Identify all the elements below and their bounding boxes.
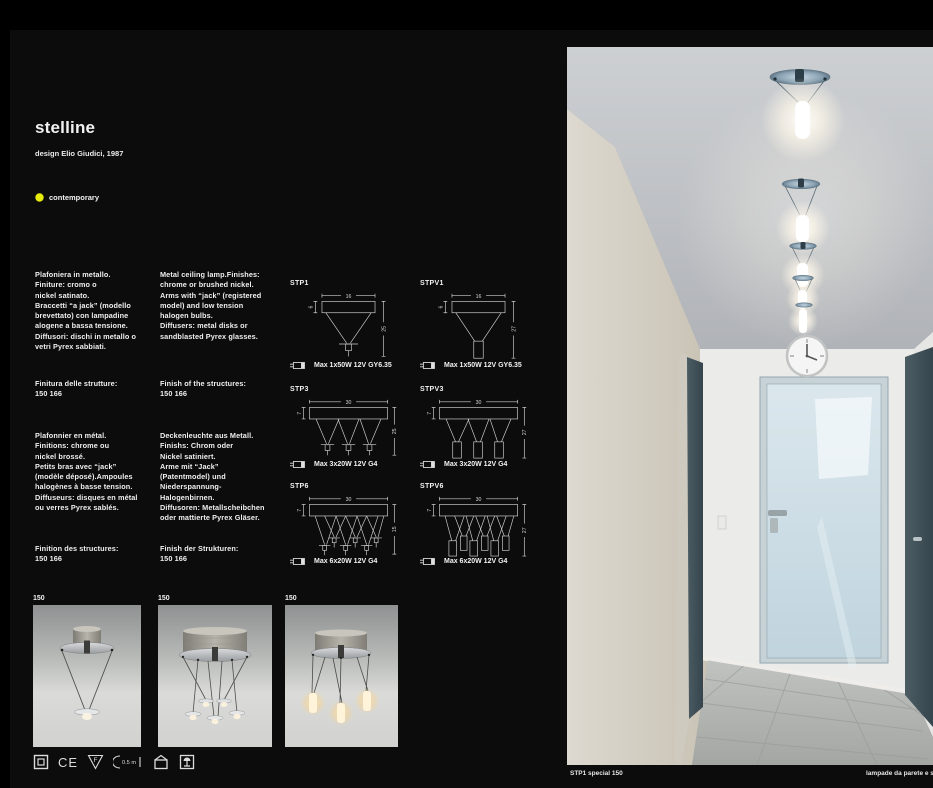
door-handle	[768, 510, 787, 516]
halogen-bulb-icon	[290, 460, 307, 469]
technical-drawing: 30 7 15	[296, 493, 401, 558]
certification-icons: CE F 0.5 m	[33, 753, 195, 771]
f-mark-icon: F	[87, 754, 104, 770]
model-code: STPV6	[420, 483, 548, 490]
model-code: STPV3	[420, 386, 548, 393]
product-photo-single: 150	[33, 595, 141, 747]
product-title: stelline	[35, 118, 95, 138]
photo-caption-right: lampade da parete e soffitto	[866, 770, 933, 777]
lamp-spec-row: Max 1x50W 12V GY6.35	[420, 361, 522, 370]
lamp-spec: Max 3x20W 12V G4	[314, 461, 377, 468]
technical-drawing: 30 7 27	[426, 493, 531, 558]
finish-italian: Finitura delle strutture: 150 166	[35, 379, 161, 400]
model-code: STPV1	[420, 280, 548, 287]
designer-credit: design Elio Giudici, 1987	[35, 149, 123, 158]
right-door-handle	[913, 537, 922, 541]
svg-text:25: 25	[392, 428, 398, 434]
wall-clock	[787, 336, 827, 376]
svg-text:30: 30	[346, 497, 352, 503]
hallway-scene	[567, 47, 933, 765]
ceiling-mount-icon	[152, 754, 170, 770]
model-code: STP1	[290, 280, 418, 287]
lamp-spec-row: Max 3x20W 12V G4	[290, 460, 377, 469]
product-photo-three-glass: 150	[285, 595, 398, 747]
category-dot-icon	[35, 193, 44, 202]
lamp-photo-single	[33, 605, 141, 747]
description-german: Deckenleuchte aus Metall. Finishs: Chrom…	[160, 431, 286, 524]
distance-0-5m-icon: 0.5 m	[113, 754, 143, 770]
halogen-bulb-icon	[420, 557, 437, 566]
svg-text:6: 6	[439, 306, 445, 309]
technical-drawing: 16 6 27	[426, 290, 531, 362]
description-italian: Plafoniera in metallo. Finiture: cromo o…	[35, 270, 161, 352]
class2-insulation-icon	[33, 754, 49, 770]
svg-text:30: 30	[476, 400, 482, 406]
finish-english: Finish of the structures: 150 166	[160, 379, 286, 400]
catalog-spread: stelline design Elio Giudici, 1987 conte…	[10, 30, 933, 788]
lamp-spec: Max 6x20W 12V G4	[314, 558, 377, 565]
svg-text:27: 27	[522, 429, 528, 435]
model-code: STP6	[290, 483, 418, 490]
description-french: Plafonnier en métal. Finitions: chrome o…	[35, 431, 161, 513]
lamp-spec: Max 1x50W 12V GY6.35	[444, 362, 522, 369]
svg-text:25: 25	[381, 326, 387, 332]
svg-text:30: 30	[476, 497, 482, 503]
lamp-spec-row: Max 6x20W 12V G4	[290, 557, 377, 566]
svg-text:15: 15	[392, 526, 398, 532]
finish-code-label: 150	[158, 595, 272, 602]
indoor-lamp-icon	[179, 754, 195, 770]
svg-text:7: 7	[427, 412, 433, 415]
svg-text:7: 7	[297, 412, 303, 415]
halogen-bulb-icon	[290, 557, 307, 566]
ce-mark: CE	[58, 755, 78, 770]
back-door	[760, 377, 888, 667]
svg-text:27: 27	[522, 527, 528, 533]
svg-text:27: 27	[511, 326, 517, 332]
svg-text:F: F	[94, 757, 98, 764]
svg-text:16: 16	[346, 294, 352, 300]
lamp-spec: Max 1x50W 12V GY6.35	[314, 362, 392, 369]
svg-text:6: 6	[309, 306, 315, 309]
description-english: Metal ceiling lamp.Finishes: chrome or b…	[160, 270, 286, 342]
model-code: STP3	[290, 386, 418, 393]
technical-drawing: 16 6 25	[296, 290, 401, 362]
product-photo-six: 150	[158, 595, 272, 747]
technical-drawing: 30 7 25	[296, 396, 401, 461]
svg-text:0.5 m: 0.5 m	[122, 760, 136, 766]
technical-drawing: 30 7 27	[426, 396, 531, 461]
lamp-spec: Max 3x20W 12V G4	[444, 461, 507, 468]
lamp-spec-row: Max 1x50W 12V GY6.35	[290, 361, 392, 370]
left-door	[687, 357, 703, 719]
hallway-photograph	[567, 47, 933, 765]
diagram-stpv3: STPV3 30 7 27 Max 3x20W 12V G4	[420, 386, 548, 461]
lamp-photo-three-glass	[285, 605, 398, 747]
finish-code-label: 150	[285, 595, 398, 602]
diagram-stpv1: STPV1 16 6 27 Max 1x50W 12V GY6.35	[420, 280, 548, 362]
lamp-spec-row: Max 3x20W 12V G4	[420, 460, 507, 469]
lamp-spec: Max 6x20W 12V G4	[444, 558, 507, 565]
category-label: contemporary	[49, 193, 99, 202]
svg-text:30: 30	[346, 400, 352, 406]
finish-german: Finish der Strukturen: 150 166	[160, 544, 286, 565]
lamp-spec-row: Max 6x20W 12V G4	[420, 557, 507, 566]
svg-text:7: 7	[427, 509, 433, 512]
halogen-bulb-icon	[420, 460, 437, 469]
svg-text:16: 16	[476, 294, 482, 300]
diagram-stp1: STP1 16 6 25 Max 1x50W 12V GY6.35	[290, 280, 418, 362]
catalog-page: { "header": { "title": "stelline", "desi…	[0, 0, 933, 788]
diagram-stp6: STP6 30 7 15 Max 6x20W	[290, 483, 418, 558]
finish-french: Finition des structures: 150 166	[35, 544, 161, 565]
halogen-bulb-icon	[290, 361, 307, 370]
finish-code-label: 150	[33, 595, 141, 602]
category-row: contemporary	[35, 193, 99, 202]
diagram-stpv6: STPV6 30 7 27 Max 6x20W 12V G4	[420, 483, 548, 558]
svg-text:7: 7	[297, 509, 303, 512]
halogen-bulb-icon	[420, 361, 437, 370]
diagram-stp3: STP3 30 7 25 Max 3x20W 12V G4	[290, 386, 418, 461]
photo-caption-left: STP1 special 150	[570, 770, 623, 777]
lamp-photo-six	[158, 605, 272, 747]
